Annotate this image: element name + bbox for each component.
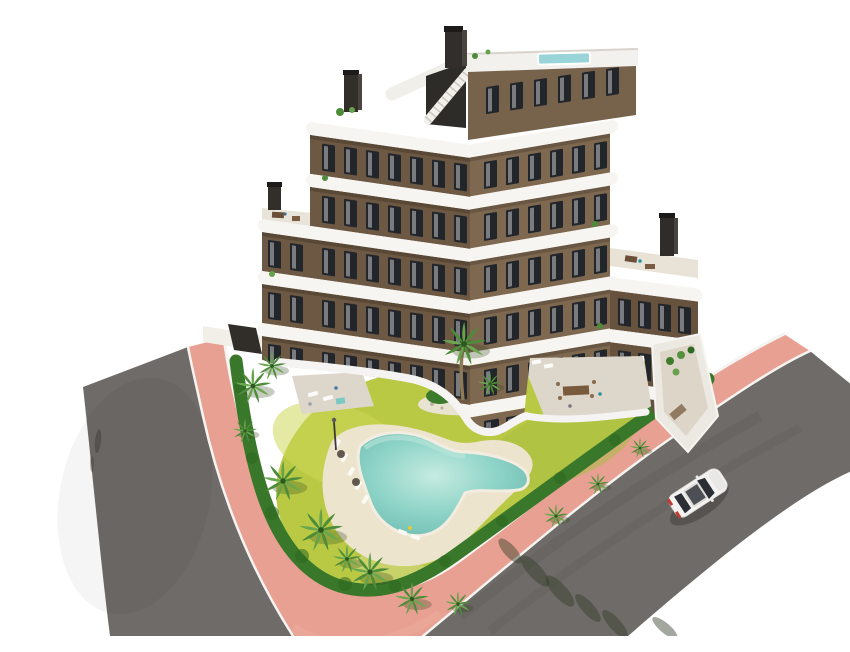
window bbox=[606, 67, 619, 96]
person bbox=[334, 386, 338, 390]
person bbox=[598, 392, 602, 396]
architectural-rendering bbox=[40, 16, 850, 636]
window bbox=[582, 71, 595, 100]
roof-plant bbox=[472, 53, 478, 59]
chair bbox=[592, 380, 596, 384]
person bbox=[308, 402, 312, 406]
chimney bbox=[268, 184, 281, 210]
person bbox=[283, 212, 286, 215]
window bbox=[510, 82, 523, 111]
terrace-plant bbox=[666, 357, 674, 365]
chimney-cap bbox=[659, 213, 675, 218]
chimney bbox=[445, 28, 462, 68]
terrace-plant bbox=[673, 369, 680, 376]
rooftop-pool bbox=[538, 52, 590, 64]
chimney-cap bbox=[343, 70, 359, 75]
terrace-plant bbox=[677, 351, 685, 359]
window bbox=[558, 74, 571, 103]
chimney-cap bbox=[267, 182, 282, 187]
terrace-plant bbox=[688, 347, 695, 354]
terrace-deck bbox=[610, 248, 698, 278]
lamp-head bbox=[332, 418, 336, 422]
mini-pool bbox=[336, 397, 346, 404]
window bbox=[486, 85, 499, 114]
chimney-side bbox=[674, 218, 678, 254]
chimney bbox=[344, 72, 358, 112]
parasol bbox=[337, 450, 345, 458]
chimney-side bbox=[462, 30, 467, 66]
chair bbox=[590, 394, 594, 398]
entrance-gate bbox=[228, 324, 262, 354]
chimney-cap bbox=[444, 26, 463, 32]
outdoor-sofa bbox=[645, 264, 655, 269]
window bbox=[534, 78, 547, 107]
render-canvas bbox=[40, 16, 850, 636]
road-scuff bbox=[90, 456, 94, 472]
outdoor-sofa bbox=[272, 212, 284, 219]
roof-terrace-right bbox=[610, 248, 698, 278]
person bbox=[638, 259, 642, 263]
chimney-side bbox=[358, 74, 362, 110]
person bbox=[568, 404, 572, 408]
beach-toy bbox=[408, 526, 412, 530]
chair bbox=[558, 396, 562, 400]
outdoor-sofa bbox=[292, 216, 300, 221]
dining-table bbox=[563, 385, 589, 395]
chimney bbox=[660, 216, 674, 256]
chair bbox=[556, 382, 560, 386]
stone bbox=[440, 406, 443, 409]
parasol bbox=[352, 478, 360, 486]
roof-plant bbox=[486, 50, 491, 55]
